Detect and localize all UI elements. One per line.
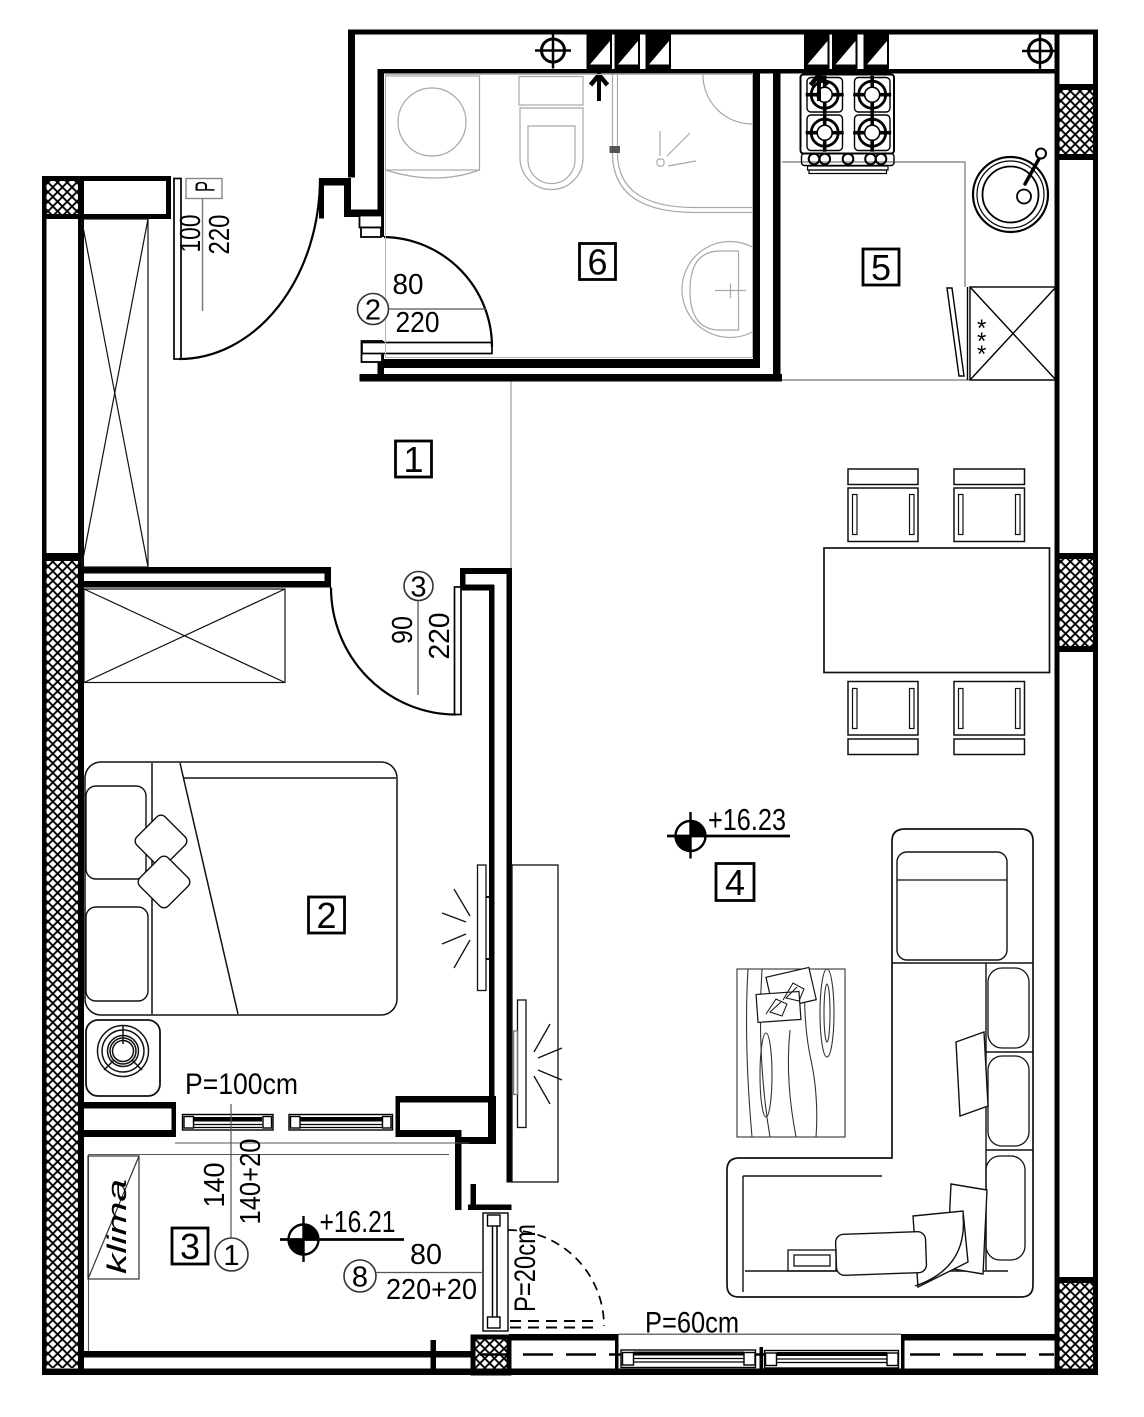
- svg-text:80: 80: [393, 269, 424, 301]
- svg-text:6: 6: [587, 242, 607, 283]
- svg-text:P=100cm: P=100cm: [185, 1068, 298, 1101]
- svg-text:1: 1: [223, 1240, 239, 1272]
- svg-text:140+20: 140+20: [235, 1139, 267, 1225]
- svg-text:P: P: [190, 181, 221, 192]
- svg-text:klima: klima: [102, 1179, 132, 1274]
- svg-text:220: 220: [396, 307, 440, 339]
- svg-text:+16.21: +16.21: [320, 1204, 396, 1239]
- svg-text:3: 3: [410, 572, 426, 604]
- svg-text:4: 4: [725, 862, 745, 903]
- svg-text:140: 140: [199, 1163, 231, 1208]
- svg-text:220+20: 220+20: [386, 1274, 477, 1306]
- svg-text:P=60cm: P=60cm: [645, 1307, 739, 1340]
- svg-text:2: 2: [316, 895, 336, 936]
- svg-text:3: 3: [180, 1226, 200, 1267]
- svg-text:80: 80: [410, 1239, 442, 1271]
- svg-text:100: 100: [175, 215, 207, 253]
- svg-text:220: 220: [204, 215, 236, 255]
- svg-text:8: 8: [352, 1262, 368, 1294]
- svg-text:*: *: [977, 341, 986, 368]
- svg-text:1: 1: [403, 439, 423, 480]
- svg-text:220: 220: [424, 613, 456, 660]
- svg-text:5: 5: [871, 247, 891, 288]
- svg-text:P=20cm: P=20cm: [509, 1224, 542, 1312]
- svg-text:2: 2: [365, 295, 381, 327]
- svg-text:+16.23: +16.23: [708, 802, 786, 837]
- svg-text:90: 90: [387, 616, 419, 644]
